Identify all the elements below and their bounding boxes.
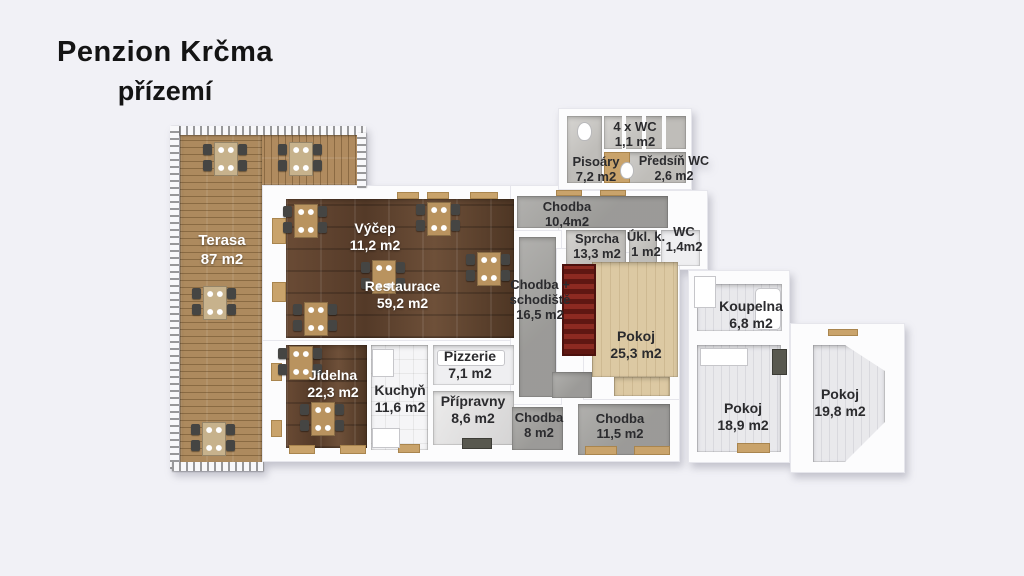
chair-icon <box>451 204 460 215</box>
chair-icon <box>227 288 236 299</box>
chair-icon <box>396 262 405 273</box>
room-label-pisoary: Pisoáry 7,2 m2 <box>562 154 630 184</box>
threshold <box>634 446 670 455</box>
chair-icon <box>466 254 475 265</box>
room-area: 19,8 m2 <box>801 403 879 420</box>
cabinet-icon <box>271 420 282 437</box>
room-name: Pizzerie <box>428 348 512 365</box>
room-area: 18,9 m2 <box>704 417 782 434</box>
room-area: 16,5 m2 <box>506 307 574 322</box>
room-area: 1,4m2 <box>658 239 710 254</box>
threshold <box>427 192 449 199</box>
table-icon <box>214 142 238 176</box>
room-label-chodba-8: Chodba 8 m2 <box>510 410 568 440</box>
room-area: 7,2 m2 <box>562 169 630 184</box>
room-area: 59,2 m2 <box>335 295 470 312</box>
chair-icon <box>238 160 247 171</box>
table-icon <box>203 286 227 320</box>
mat-icon <box>462 438 492 449</box>
chair-icon <box>416 204 425 215</box>
chair-icon <box>300 420 309 431</box>
chair-icon <box>335 404 344 415</box>
room-name: Pokoj <box>599 328 673 345</box>
chair-icon <box>203 144 212 155</box>
room-name: Předsíň WC <box>632 154 716 169</box>
threshold <box>585 446 617 455</box>
room-label-4xwc: 4 x WC 1,1 m2 <box>603 119 667 149</box>
room-label-predsin-wc: Předsíň WC 2,6 m2 <box>632 154 716 184</box>
terasa-railing-top <box>172 126 366 135</box>
room-name: Výčep <box>325 220 425 237</box>
room-area: 11,2 m2 <box>325 237 425 254</box>
threshold <box>600 190 626 196</box>
room-name-line2: schodiště <box>506 292 574 307</box>
chair-icon <box>313 348 322 359</box>
dining-set-icon <box>191 421 235 455</box>
stove-icon <box>372 428 400 448</box>
chair-icon <box>226 440 235 451</box>
chair-icon <box>361 262 370 273</box>
terasa-railing-right <box>357 133 366 188</box>
room-name: WC <box>658 224 710 239</box>
room-area: 10,4m2 <box>528 214 606 229</box>
table-icon <box>202 422 226 456</box>
door-icon <box>772 349 787 375</box>
room-name: Pokoj <box>704 400 782 417</box>
chair-icon <box>328 320 337 331</box>
chair-icon <box>283 222 292 233</box>
terasa-railing-bottom <box>172 462 264 471</box>
chair-icon <box>191 424 200 435</box>
table-icon <box>311 402 335 436</box>
threshold <box>289 445 315 454</box>
dining-set-icon <box>283 203 327 237</box>
room-name: Chodba <box>528 199 606 214</box>
room-label-wc: WC 1,4m2 <box>658 224 710 254</box>
room-area: 7,1 m2 <box>428 365 512 382</box>
dining-set-icon <box>203 141 247 175</box>
chair-icon <box>278 160 287 171</box>
wall-bevel <box>845 345 885 371</box>
room-name: Terasa <box>177 231 267 250</box>
chair-icon <box>238 144 247 155</box>
chair-icon <box>192 304 201 315</box>
chair-icon <box>203 160 212 171</box>
dining-set-icon <box>278 141 322 175</box>
chair-icon <box>227 304 236 315</box>
threshold <box>397 192 419 199</box>
room-label-pripravny: Přípravny 8,6 m2 <box>423 393 523 427</box>
room-area: 8,6 m2 <box>423 410 523 427</box>
chair-icon <box>293 304 302 315</box>
room-label-pokoj-253: Pokoj 25,3 m2 <box>599 328 673 362</box>
room-label-terasa: Terasa 87 m2 <box>177 231 267 269</box>
room-label-vycep: Výčep 11,2 m2 <box>325 220 425 254</box>
threshold <box>470 192 498 199</box>
table-icon <box>477 252 501 286</box>
chair-icon <box>283 206 292 217</box>
floor-pokoj-253-ext <box>614 377 670 396</box>
wall-bevel <box>845 422 885 462</box>
chair-icon <box>313 160 322 171</box>
chair-icon <box>300 404 309 415</box>
room-area: 11,5 m2 <box>584 426 656 441</box>
room-label-restaurace: Restaurace 59,2 m2 <box>335 278 470 312</box>
chair-icon <box>451 220 460 231</box>
room-name: Restaurace <box>335 278 470 295</box>
terasa-railing-left <box>170 126 179 469</box>
floorplan-canvas: Penzion Krčma přízemí <box>0 0 1024 576</box>
threshold <box>828 329 858 336</box>
room-name-line1: Chodba + <box>506 277 574 292</box>
floor-corridor-connector <box>552 372 592 398</box>
chair-icon <box>191 440 200 451</box>
chair-icon <box>335 420 344 431</box>
room-label-pokoj-189: Pokoj 18,9 m2 <box>704 400 782 434</box>
room-label-pokoj-198: Pokoj 19,8 m2 <box>801 386 879 420</box>
room-label-chodba-115: Chodba 11,5 m2 <box>584 411 656 441</box>
chair-icon <box>278 348 287 359</box>
table-icon <box>289 142 313 176</box>
table-icon <box>304 302 328 336</box>
room-area: 25,3 m2 <box>599 345 673 362</box>
chair-icon <box>192 288 201 299</box>
room-area: 87 m2 <box>177 250 267 269</box>
room-name: 4 x WC <box>603 119 667 134</box>
chair-icon <box>313 144 322 155</box>
toilet-icon <box>577 122 592 141</box>
chair-icon <box>318 206 327 217</box>
chair-icon <box>226 424 235 435</box>
threshold <box>340 445 366 454</box>
chair-icon <box>278 144 287 155</box>
dining-set-icon <box>293 301 337 335</box>
room-name: Pisoáry <box>562 154 630 169</box>
room-label-koupelna: Koupelna 6,8 m2 <box>710 298 792 332</box>
room-area: 1,1 m2 <box>603 134 667 149</box>
room-label-pizzerie: Pizzerie 7,1 m2 <box>428 348 512 382</box>
cabinet-icon <box>272 282 286 302</box>
room-area: 8 m2 <box>510 425 568 440</box>
table-icon <box>294 204 318 238</box>
room-area: 2,6 m2 <box>632 169 716 184</box>
room-name: Chodba <box>510 410 568 425</box>
room-name: Přípravny <box>423 393 523 410</box>
room-name: Chodba <box>584 411 656 426</box>
chair-icon <box>293 320 302 331</box>
dining-set-icon <box>466 251 510 285</box>
threshold <box>556 190 582 196</box>
bed-icon <box>700 348 748 366</box>
room-name: Koupelna <box>710 298 792 315</box>
room-name: Pokoj <box>801 386 879 403</box>
table-icon <box>427 202 451 236</box>
dining-set-icon <box>300 401 344 435</box>
threshold <box>737 443 770 453</box>
floorplan: Terasa 87 m2 Výčep 11,2 m2 Restaurace 59… <box>0 0 1024 576</box>
threshold <box>398 444 420 453</box>
chair-icon <box>501 254 510 265</box>
dining-set-icon <box>192 285 236 319</box>
room-label-chodba-104: Chodba 10,4m2 <box>528 199 606 229</box>
room-label-chodba-schodiste: Chodba + schodiště 16,5 m2 <box>506 277 574 322</box>
room-area: 6,8 m2 <box>710 315 792 332</box>
